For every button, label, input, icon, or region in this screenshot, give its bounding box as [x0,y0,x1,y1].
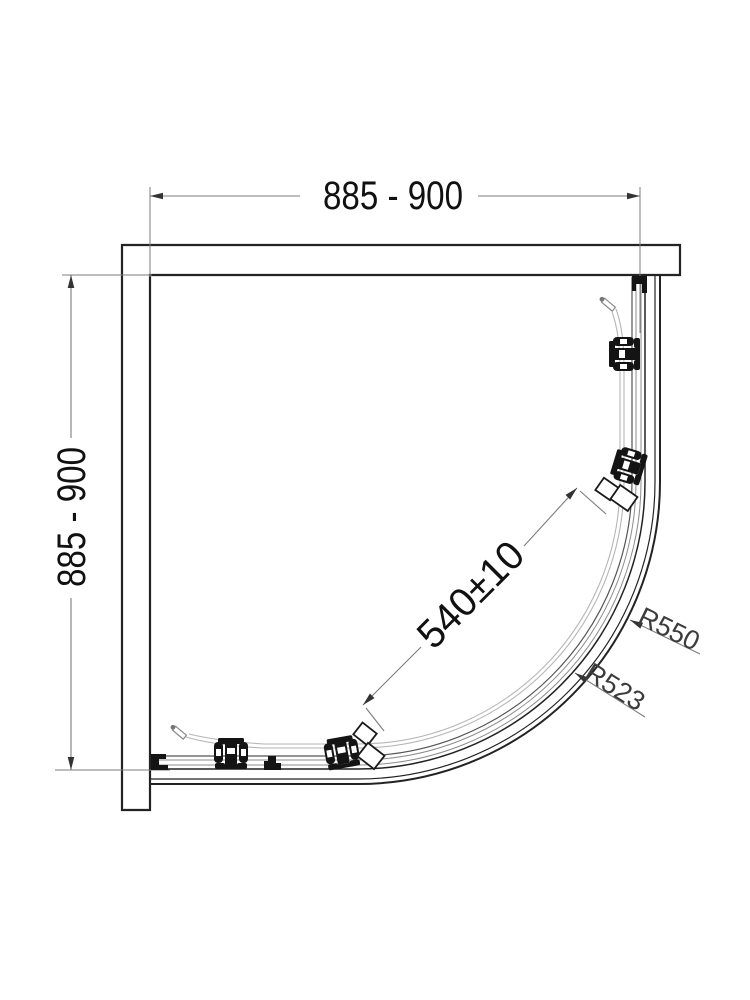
arrow-left-upper [68,275,75,288]
frame-outer-arc [151,276,660,784]
roller-bottom [214,738,248,769]
roller-upper-mid [609,445,649,487]
dimension-label-top-width: 885 - 900 [323,174,463,218]
dimension-label-left-depth: 885 - 900 [50,447,94,587]
track-arc-inner [152,277,632,756]
door-handles [353,478,637,769]
glass-clamp-bottom [264,756,281,770]
wall-profile-clip-bottom [151,754,168,770]
arrow-diagonal-upper [566,488,578,500]
dimension-label-diagonal-opening: 540±10 [409,533,533,657]
hardware [151,276,648,771]
door-stop-pin-bottom [170,724,187,739]
arrow-top-left [150,193,163,200]
arrow-left-lower [68,757,75,770]
technical-drawing-sheet: 885 - 900 885 - 900 540±10 R550 R523 [0,0,750,1000]
radius-label-inner: R523 [580,657,651,717]
door-stop-pin-top [599,296,616,311]
frame-outer-inner-arc [151,276,655,779]
radius-label-outer: R550 [633,601,704,656]
track-arc-mid2 [152,277,636,760]
quadrant-enclosure-plan-drawing: 885 - 900 885 - 900 540±10 R550 R523 [0,0,750,1000]
wall-outline [122,245,680,810]
curved-frame [151,276,660,784]
arrow-top-right [627,193,640,200]
roller-top [609,337,640,371]
glass-door-line-inner [189,312,620,744]
